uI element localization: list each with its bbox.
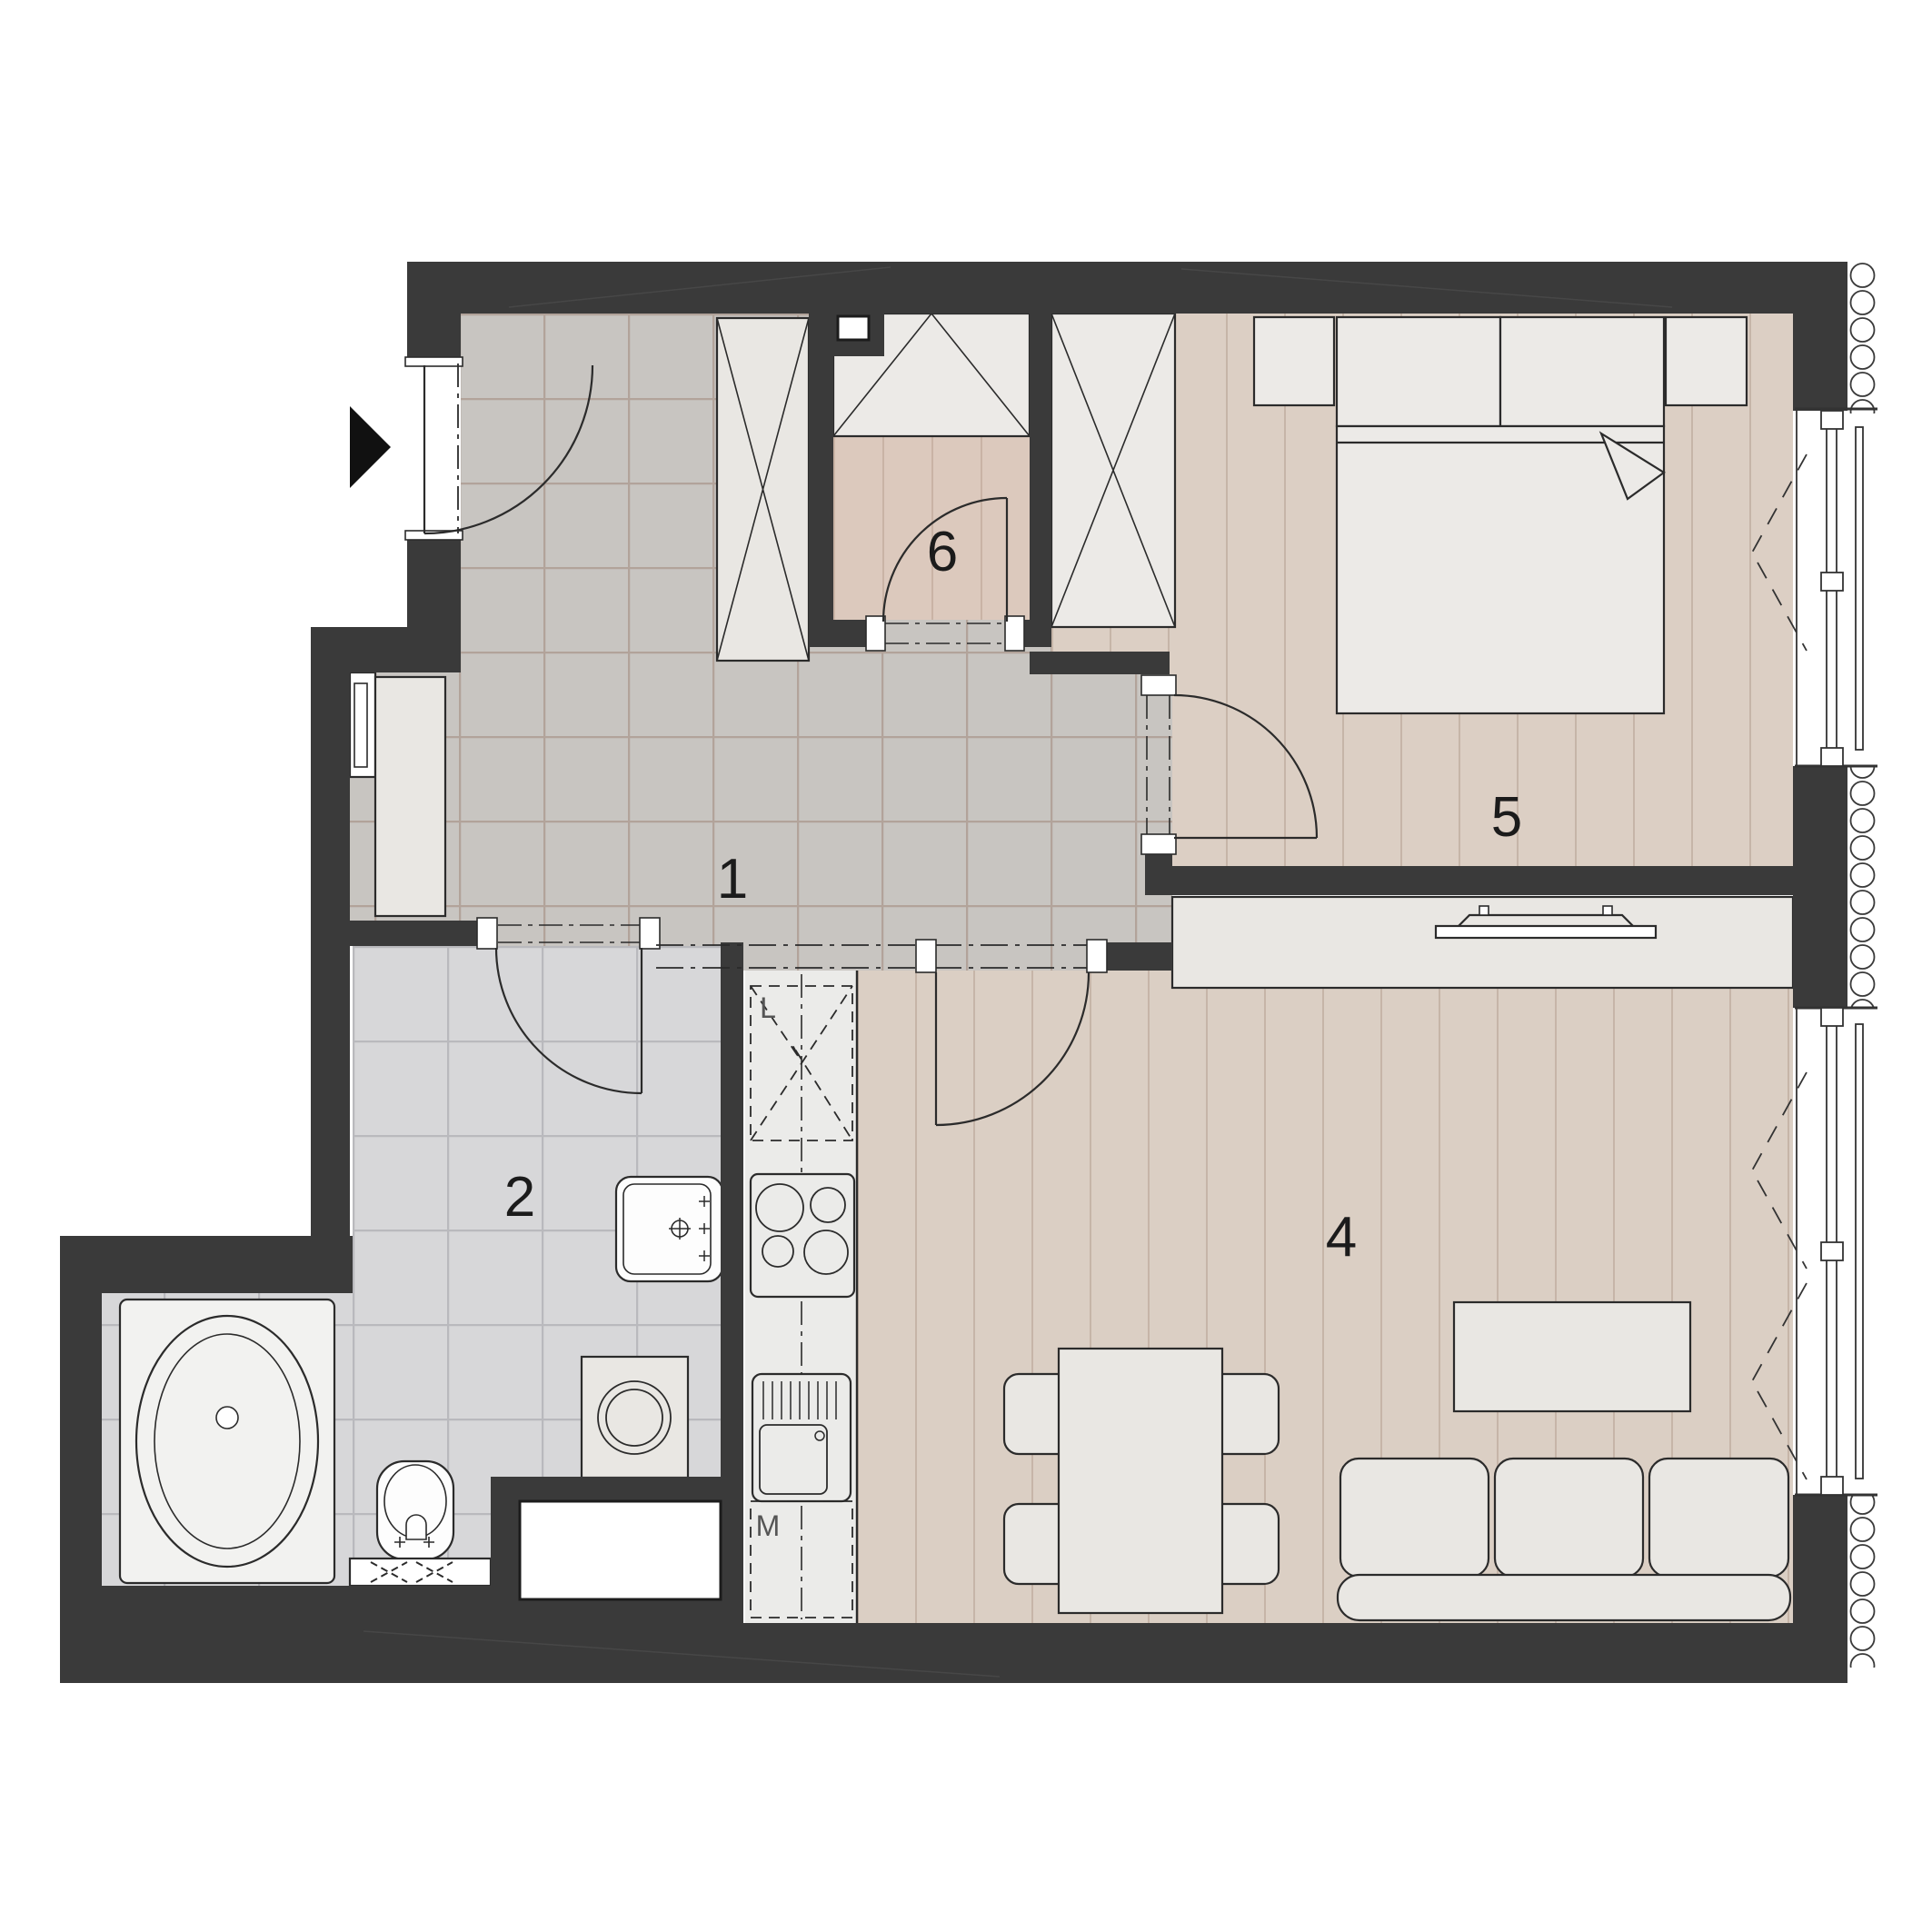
wall-hall-bath [350,921,496,946]
bathtub-drain [216,1407,238,1429]
towel-radiator [350,1559,491,1586]
hall-shaft [350,672,375,777]
wall-sw-step [60,1236,353,1293]
dining-table [1059,1349,1222,1613]
nightstand-right [1666,317,1747,405]
toilet [377,1461,453,1559]
hall-cabinet [375,677,445,916]
wall-right-pier-bottom [1793,1495,1847,1683]
label-bathroom: 2 [504,1166,535,1229]
wall-above-duct [491,1477,721,1501]
bed-pillow-right [1500,317,1664,426]
wall-left-step [311,627,461,672]
bedroom-wardrobe [1051,314,1175,627]
sideboard [1172,897,1793,988]
wall-right-pier-mid [1793,766,1847,1008]
label-bedroom: 5 [1491,786,1522,849]
window-frame-block [1821,1008,1843,1026]
wall-bath-kitchen [721,942,743,1623]
door-frame [405,357,463,366]
tv-knob-left [1479,906,1489,915]
wall-duct-left [491,1501,520,1624]
door-frame [1141,675,1176,695]
washbasin [616,1177,722,1281]
door-frame [1087,940,1107,972]
wall-closet-divider [809,314,833,647]
window-frame-block [1821,411,1843,429]
door-frame [477,918,497,949]
label-closet: 6 [927,521,958,583]
nightstand-left [1254,317,1334,405]
label-fridge: L [760,991,776,1024]
insulation-hatch [1847,766,1877,1008]
wall-left-upper [407,314,461,363]
window-mullion [1821,1242,1843,1260]
kitchen-sink [752,1374,851,1501]
door-frame [1005,616,1024,651]
wall-closet-right [1030,314,1051,647]
window-mullion [1821,573,1843,591]
wall-bedroom-living [1168,866,1793,895]
entrance-arrow-icon [350,406,391,488]
wall-hall-bedroom-top [1030,652,1170,674]
label-hallway: 1 [717,848,748,911]
label-dishwasher: M [756,1509,781,1542]
duct-niche [520,1501,721,1599]
hob [751,1174,854,1297]
wall-right-pier-top [1793,262,1847,411]
insulation-hatch [1847,1495,1877,1668]
exterior-sill [1856,427,1863,750]
door-frame [866,616,885,651]
label-living: 4 [1326,1206,1357,1269]
washing-machine [582,1357,688,1478]
door-frame [405,531,463,540]
shaft-niche [838,316,869,340]
floor-plan-drawing: 1 2 4 5 6 L M [0,0,1932,1932]
wall-left-long [311,672,350,1236]
hall-wardrobe [717,318,809,661]
bathtub [120,1300,334,1583]
sofa [1338,1459,1790,1620]
floor-plan-canvas: 1 2 4 5 6 L M [0,0,1932,1932]
tv-base [1436,926,1656,938]
wall-left-mid [407,533,461,627]
window-frame-block [1821,1477,1843,1495]
tv-knob-right [1603,906,1612,915]
window-frame-block [1821,748,1843,766]
coffee-table [1454,1302,1690,1411]
bed-pillow-left [1337,317,1500,426]
door-frame [640,918,660,949]
exterior-sill [1856,1024,1863,1479]
door-frame [916,940,936,972]
insulation-hatch [1847,262,1877,413]
door-frame [1141,834,1176,854]
wall-top [407,262,1847,314]
